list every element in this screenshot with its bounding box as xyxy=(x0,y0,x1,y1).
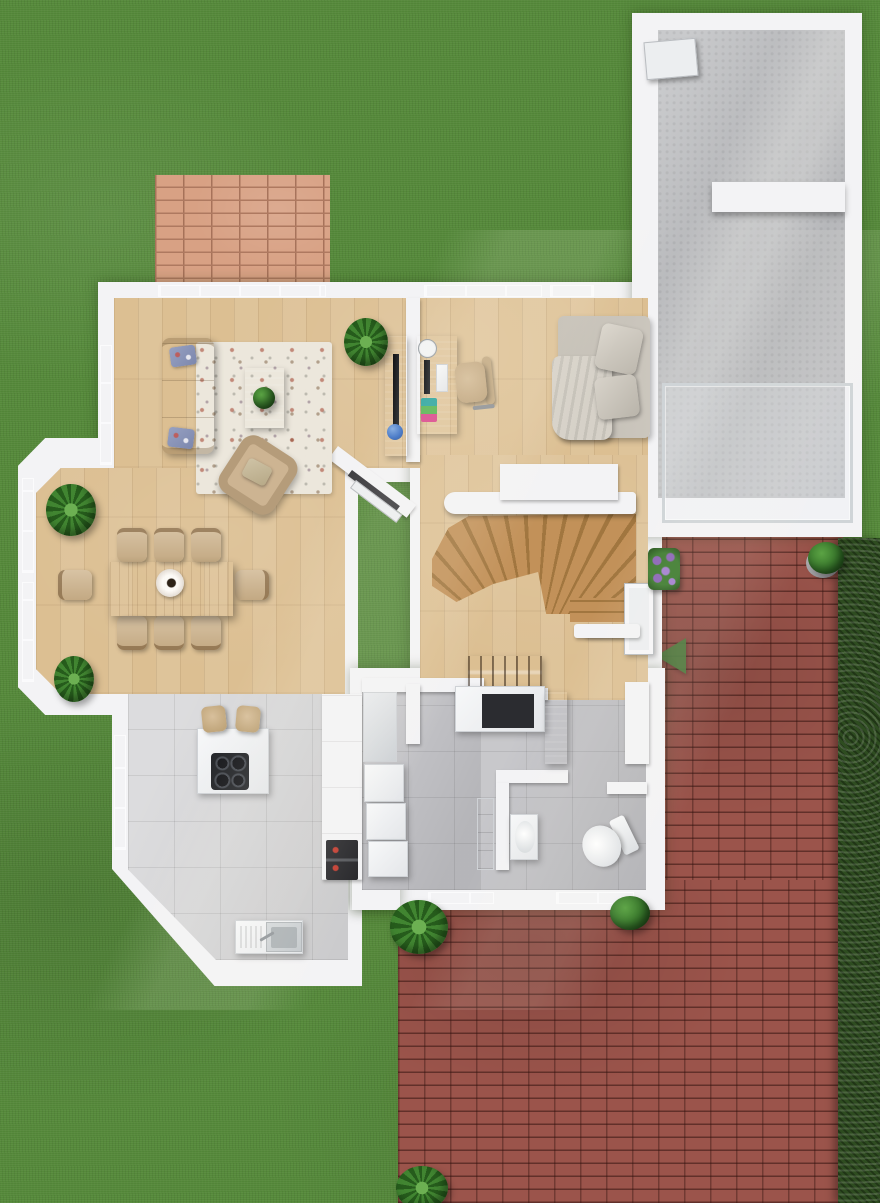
window-office-north xyxy=(424,285,542,297)
corner-bush xyxy=(808,542,844,574)
wall-utility-stub xyxy=(406,684,420,744)
drainboard xyxy=(240,926,264,948)
hall-cabinet-top xyxy=(482,694,534,728)
desk-clock xyxy=(418,339,437,358)
floor-plan-scene xyxy=(0,0,880,1203)
coat-rack xyxy=(468,656,542,688)
dining-chair xyxy=(235,570,269,600)
globe xyxy=(387,424,403,440)
window-nook-north xyxy=(550,285,594,297)
desk-keyboard xyxy=(436,364,448,392)
dining-chair xyxy=(191,616,221,650)
hall-wood-cabinet xyxy=(545,692,567,764)
brick-patio xyxy=(155,175,330,292)
entrance-door xyxy=(624,583,654,655)
dining-chair xyxy=(58,570,92,600)
dining-chair xyxy=(117,528,147,562)
tv-screen xyxy=(393,354,399,426)
utility-cabinet xyxy=(363,692,397,762)
flower-planter xyxy=(648,548,680,590)
driveway-bush xyxy=(610,896,650,930)
bottom-bush xyxy=(396,1166,448,1203)
annex-divider-wall xyxy=(712,182,845,212)
wall-toilet-niche xyxy=(607,782,647,794)
dining-chair xyxy=(154,528,184,562)
window-kitchen-west xyxy=(114,735,126,850)
washbasin xyxy=(515,821,535,853)
window-bath-south-1 xyxy=(428,892,494,904)
driveway-palm xyxy=(390,900,448,954)
dining-plant xyxy=(46,484,96,536)
bar-stool xyxy=(235,705,261,733)
washer xyxy=(368,841,408,877)
wall-entry-column xyxy=(625,682,649,764)
sofa-pillow xyxy=(169,344,198,367)
annex-side-door xyxy=(643,38,698,80)
dining-plant xyxy=(54,656,94,702)
dining-chair xyxy=(154,616,184,650)
daybed-pillow xyxy=(594,374,641,421)
office-chair xyxy=(449,350,497,414)
window-living-west xyxy=(100,345,112,465)
bath-vanity xyxy=(510,814,538,860)
terrace-glass-railing xyxy=(662,383,853,523)
wall-bath-vertical xyxy=(496,783,509,870)
kitchen-sink xyxy=(266,922,302,952)
sofa-pillow xyxy=(167,426,195,449)
driveway-bottom xyxy=(398,880,843,1203)
built-in-oven xyxy=(326,840,358,880)
dining-chair xyxy=(117,616,147,650)
hedge xyxy=(838,538,880,1203)
sink-basin xyxy=(271,927,297,948)
wall-bath-horizontal xyxy=(496,770,568,783)
entrance-canopy xyxy=(574,624,640,638)
desk-books xyxy=(421,398,437,422)
window-living-north xyxy=(158,285,326,297)
office-chair-caster xyxy=(473,404,495,410)
window-bay-2 xyxy=(22,582,34,682)
bar-stool xyxy=(201,705,228,733)
desk-monitor xyxy=(424,360,430,394)
coffee-table-plant xyxy=(253,387,275,409)
cooktop xyxy=(211,753,249,790)
office-chair-seat xyxy=(454,361,488,404)
washer xyxy=(364,764,404,802)
window-bay-1 xyxy=(22,478,34,573)
dining-chair xyxy=(191,528,221,562)
staircase-cabinet xyxy=(500,464,618,500)
washer xyxy=(366,803,406,840)
bath-shelf xyxy=(477,798,494,870)
living-plant xyxy=(344,318,388,366)
table-centerpiece xyxy=(156,569,184,597)
